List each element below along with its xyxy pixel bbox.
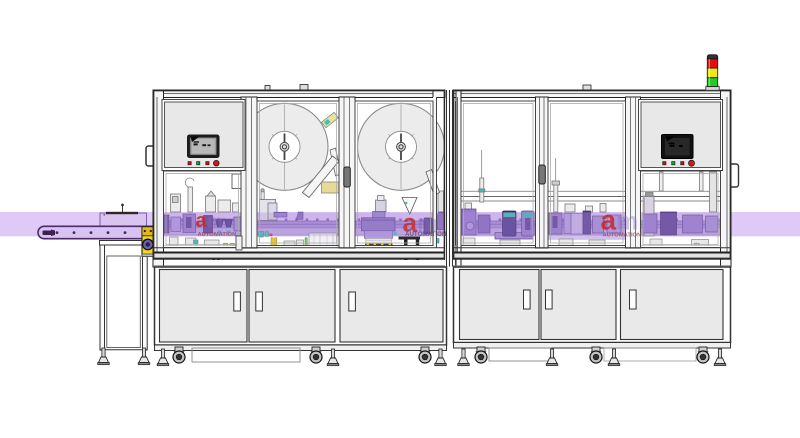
svg-text:a: a bbox=[196, 210, 208, 232]
svg-text:m: m bbox=[207, 211, 223, 231]
svg-text:a: a bbox=[601, 205, 617, 236]
svg-text:AUTOMATION: AUTOMATION bbox=[603, 233, 642, 239]
svg-text:m: m bbox=[616, 208, 638, 236]
svg-text:AUTOMATION: AUTOMATION bbox=[198, 232, 237, 238]
svg-text:AUTOMATION: AUTOMATION bbox=[405, 231, 447, 238]
